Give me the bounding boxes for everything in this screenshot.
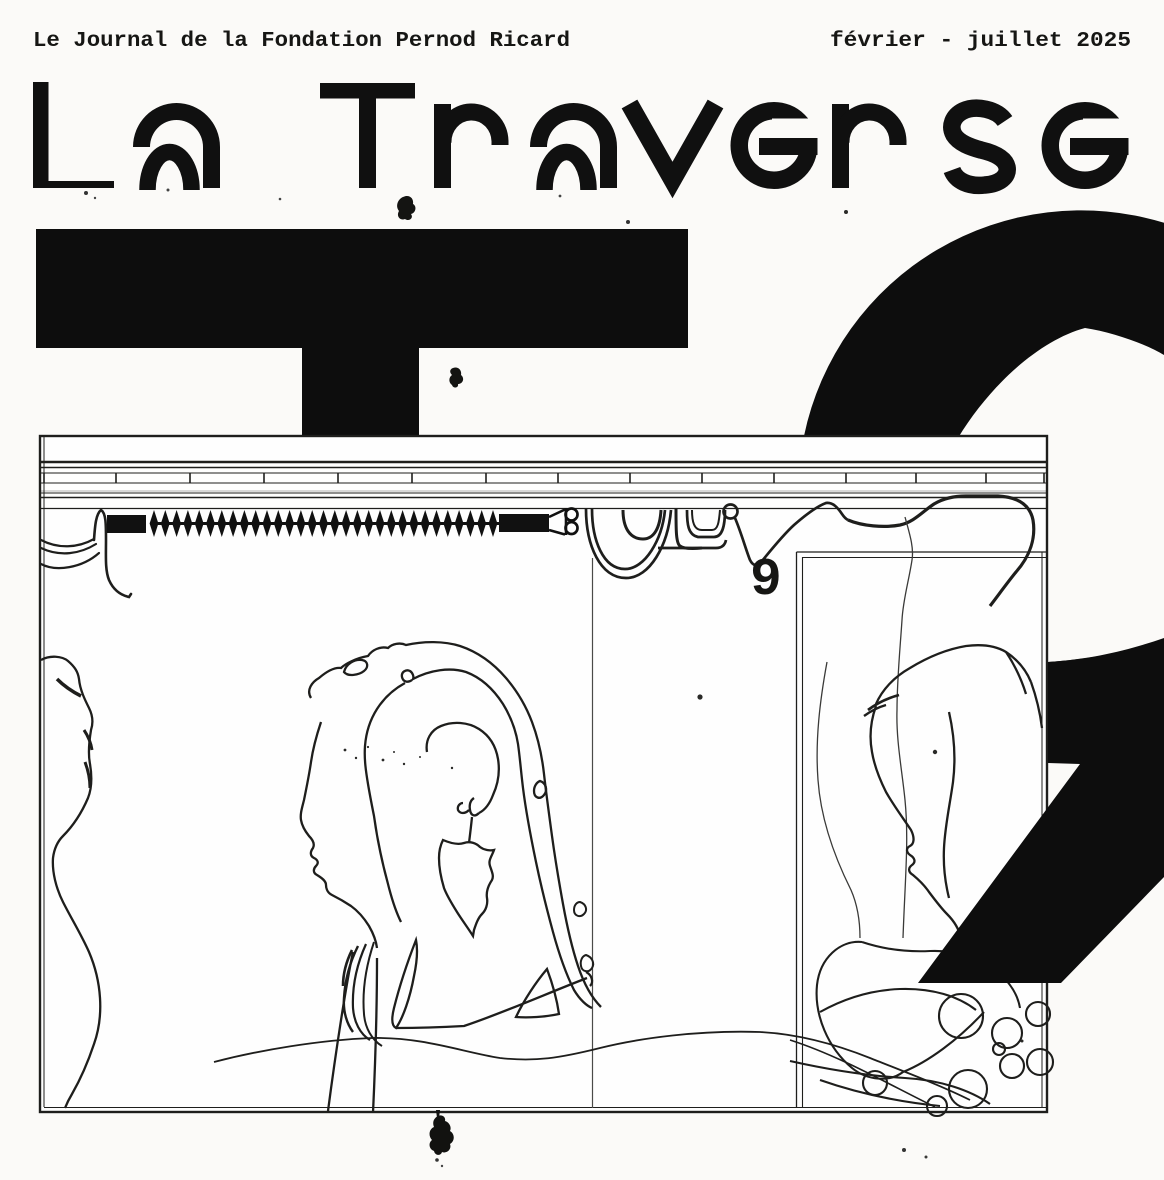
svg-text:février - juillet 2025: février - juillet 2025 (830, 30, 1131, 53)
svg-text:9: 9 (750, 550, 782, 610)
svg-text:Le Journal de la Fondation Per: Le Journal de la Fondation Pernod Ricard (33, 30, 570, 53)
